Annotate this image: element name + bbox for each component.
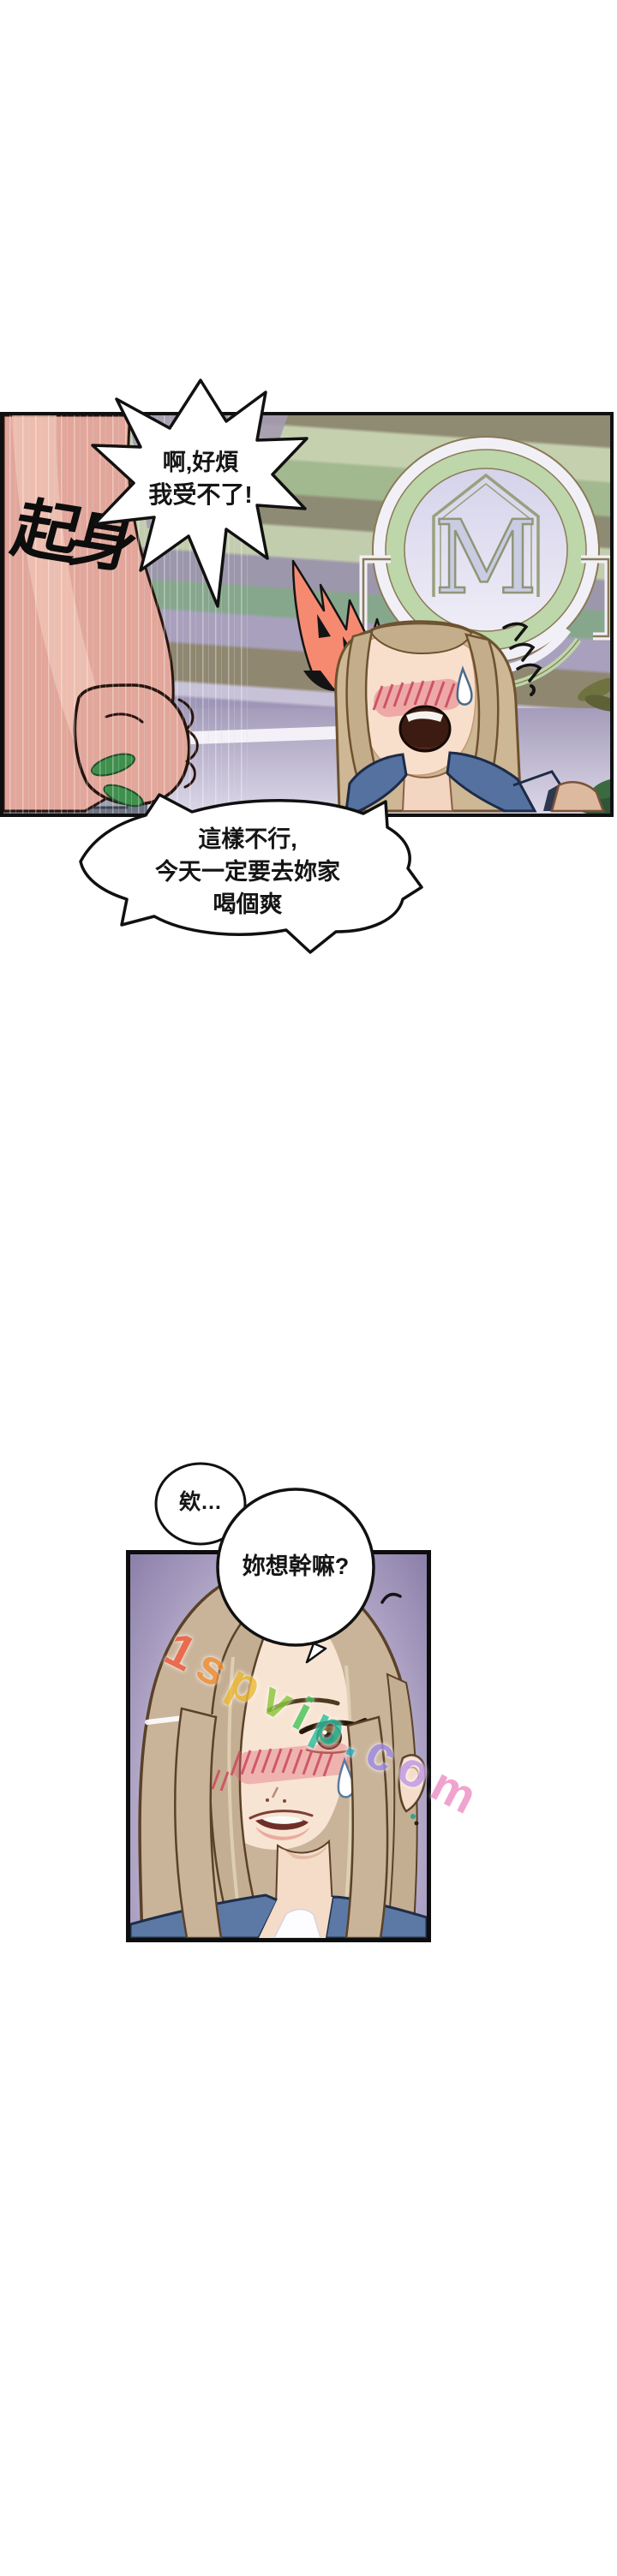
demand-bubble-line1: 這樣不行, [70, 826, 425, 855]
demand-bubble-line3: 喝個爽 [70, 891, 425, 920]
watermark-letter: m [422, 1756, 493, 1828]
question-bubble-tail [307, 1643, 326, 1662]
emblem-letter: M [434, 498, 538, 617]
speech-bubble-shout: 啊,好煩 我受不了! [91, 377, 310, 610]
comic-page: M [0, 0, 617, 2576]
demand-bubble-line2: 今天一定要去妳家 [70, 858, 425, 887]
shout-bubble-line2: 我受不了! [91, 480, 310, 510]
speech-bubble-question: 妳想幹嘛? [213, 1486, 379, 1667]
arc-motion-mark [380, 1589, 403, 1607]
hair-lock-right [346, 1717, 387, 1938]
question-bubble-text: 妳想幹嘛? [213, 1553, 379, 1582]
shout-bubble-line1: 啊,好煩 [91, 449, 310, 478]
speech-bubble-demand: 這樣不行, 今天一定要去妳家 喝個爽 [70, 786, 425, 959]
